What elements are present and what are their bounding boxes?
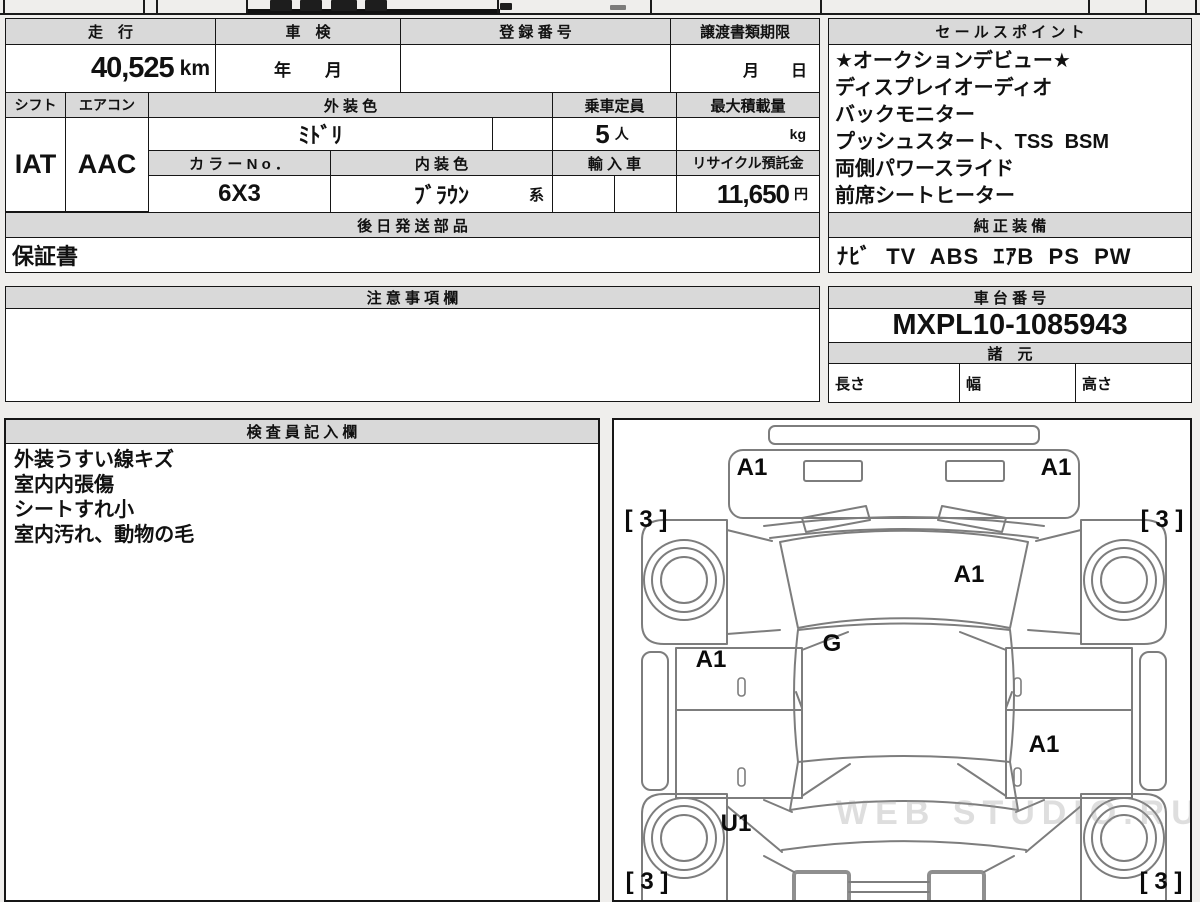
inspector-notes-box: 検 査 員 記 入 欄 外装うすい線キズ室内内張傷シートすれ小室内汚れ、動物の毛	[4, 418, 600, 902]
text-line: 外装うすい線キズ	[14, 448, 590, 473]
payload-unit: kg	[790, 126, 806, 142]
sales-points-header: セ ー ル ス ポ イ ン ト	[828, 18, 1192, 45]
recycle-fee-number: 11,650	[717, 179, 789, 210]
transfer-deadline-header: 譲渡書類期限	[670, 18, 820, 45]
text-line: ★オークションデビュー★	[835, 48, 1109, 75]
registration-value	[400, 44, 671, 93]
transfer-deadline-value: 月 日	[670, 44, 820, 93]
car-condition-diagram: WEB STUDIO.RU A1A1[ 3 ][ 3 ]A1GA1A1U1[ 3…	[612, 418, 1192, 902]
recycle-fee-value: 11,650 円	[676, 175, 820, 213]
inspection-mark: A1	[696, 646, 727, 674]
inspection-mark: G	[823, 630, 842, 658]
text-line: 室内内張傷	[14, 473, 590, 498]
interior-color-header: 内 装 色	[330, 150, 553, 176]
payload-header: 最大積載量	[676, 92, 820, 118]
chassis-header: 車 台 番 号	[828, 286, 1192, 309]
aircon-value: AAC	[65, 117, 149, 212]
color-no-header: カ ラ ー N o ．	[148, 150, 331, 176]
text-line: 室内汚れ、動物の毛	[14, 523, 590, 548]
inspection-mark: A1	[954, 561, 985, 589]
inspection-mark: A1	[1029, 731, 1060, 759]
capacity-header: 乗車定員	[552, 92, 677, 118]
inspection-mark: [ 3 ]	[1141, 506, 1184, 534]
imported-header: 輸 入 車	[552, 150, 677, 176]
equipment-header: 純 正 装 備	[828, 212, 1192, 238]
payload-value: kg	[676, 117, 820, 151]
inspection-mark: A1	[1041, 454, 1072, 482]
later-parts-value: 保証書	[5, 237, 820, 273]
interior-color-suffix: 系	[529, 184, 544, 205]
imported-cell-right	[614, 175, 677, 213]
notes-body	[5, 308, 820, 402]
color-no-value: 6X3	[148, 175, 331, 213]
equipment-value: ﾅﾋﾞ TV ABS ｴｱB PS PW	[828, 237, 1192, 273]
shift-header: シフト	[5, 92, 66, 118]
inspection-mark: [ 3 ]	[625, 506, 668, 534]
mileage-unit: km	[180, 57, 210, 81]
interior-color-value: ﾌﾞﾗｳﾝ 系	[330, 175, 553, 213]
text-line: 前席シートヒーター	[835, 183, 1109, 210]
spec-length-cell: 長さ	[828, 363, 960, 403]
cropped-row-fragment	[0, 0, 1200, 15]
imported-cell-left	[552, 175, 615, 213]
spec-width-cell: 幅	[959, 363, 1076, 403]
chassis-value: MXPL10-1085943	[828, 308, 1192, 343]
inspection-mark: [ 3 ]	[1140, 868, 1183, 896]
inspector-notes-header: 検 査 員 記 入 欄	[6, 420, 598, 444]
exterior-color-extra-cell	[492, 117, 553, 151]
specs-header: 諸 元	[828, 342, 1192, 364]
interior-color-name: ﾌﾞﾗｳﾝ	[414, 178, 469, 210]
mileage-value: 40,525 km	[5, 44, 216, 93]
text-line: シートすれ小	[14, 498, 590, 523]
diagram-marks: A1A1[ 3 ][ 3 ]A1GA1A1U1[ 3 ][ 3 ]	[614, 420, 1192, 902]
text-line: プッシュスタート、TSS BSM	[835, 129, 1109, 156]
registration-header: 登 録 番 号	[400, 18, 671, 45]
inspection-value: 年 月	[215, 44, 401, 93]
inspection-header: 車 検	[215, 18, 401, 45]
text-line: ディスプレイオーディオ	[835, 75, 1109, 102]
spec-height-cell: 高さ	[1075, 363, 1192, 403]
sales-points-body: ★オークションデビュー★ディスプレイオーディオバックモニタープッシュスタート、T…	[828, 44, 1192, 213]
inspection-mark: U1	[721, 810, 752, 838]
inspection-mark: A1	[737, 454, 768, 482]
capacity-value: 5 人	[552, 117, 677, 151]
shift-value: IAT	[5, 117, 66, 212]
later-parts-header: 後 日 発 送 部 品	[5, 212, 820, 238]
capacity-number: 5	[595, 119, 609, 150]
notes-header: 注 意 事 項 欄	[5, 286, 820, 309]
exterior-color-value: ﾐﾄﾞﾘ	[148, 117, 493, 151]
recycle-fee-unit: 円	[794, 184, 808, 204]
recycle-fee-header: リサイクル預託金	[676, 150, 820, 176]
exterior-color-header: 外 装 色	[148, 92, 553, 118]
inspection-mark: [ 3 ]	[626, 868, 669, 896]
sales-points-lines: ★オークションデビュー★ディスプレイオーディオバックモニタープッシュスタート、T…	[835, 48, 1109, 210]
mileage-number: 40,525	[91, 52, 174, 85]
inspector-notes-lines: 外装うすい線キズ室内内張傷シートすれ小室内汚れ、動物の毛	[6, 444, 598, 552]
mileage-header: 走 行	[5, 18, 216, 45]
text-line: バックモニター	[835, 102, 1109, 129]
capacity-unit: 人	[615, 124, 629, 144]
aircon-header: エアコン	[65, 92, 149, 118]
text-line: 両側パワースライド	[835, 156, 1109, 183]
